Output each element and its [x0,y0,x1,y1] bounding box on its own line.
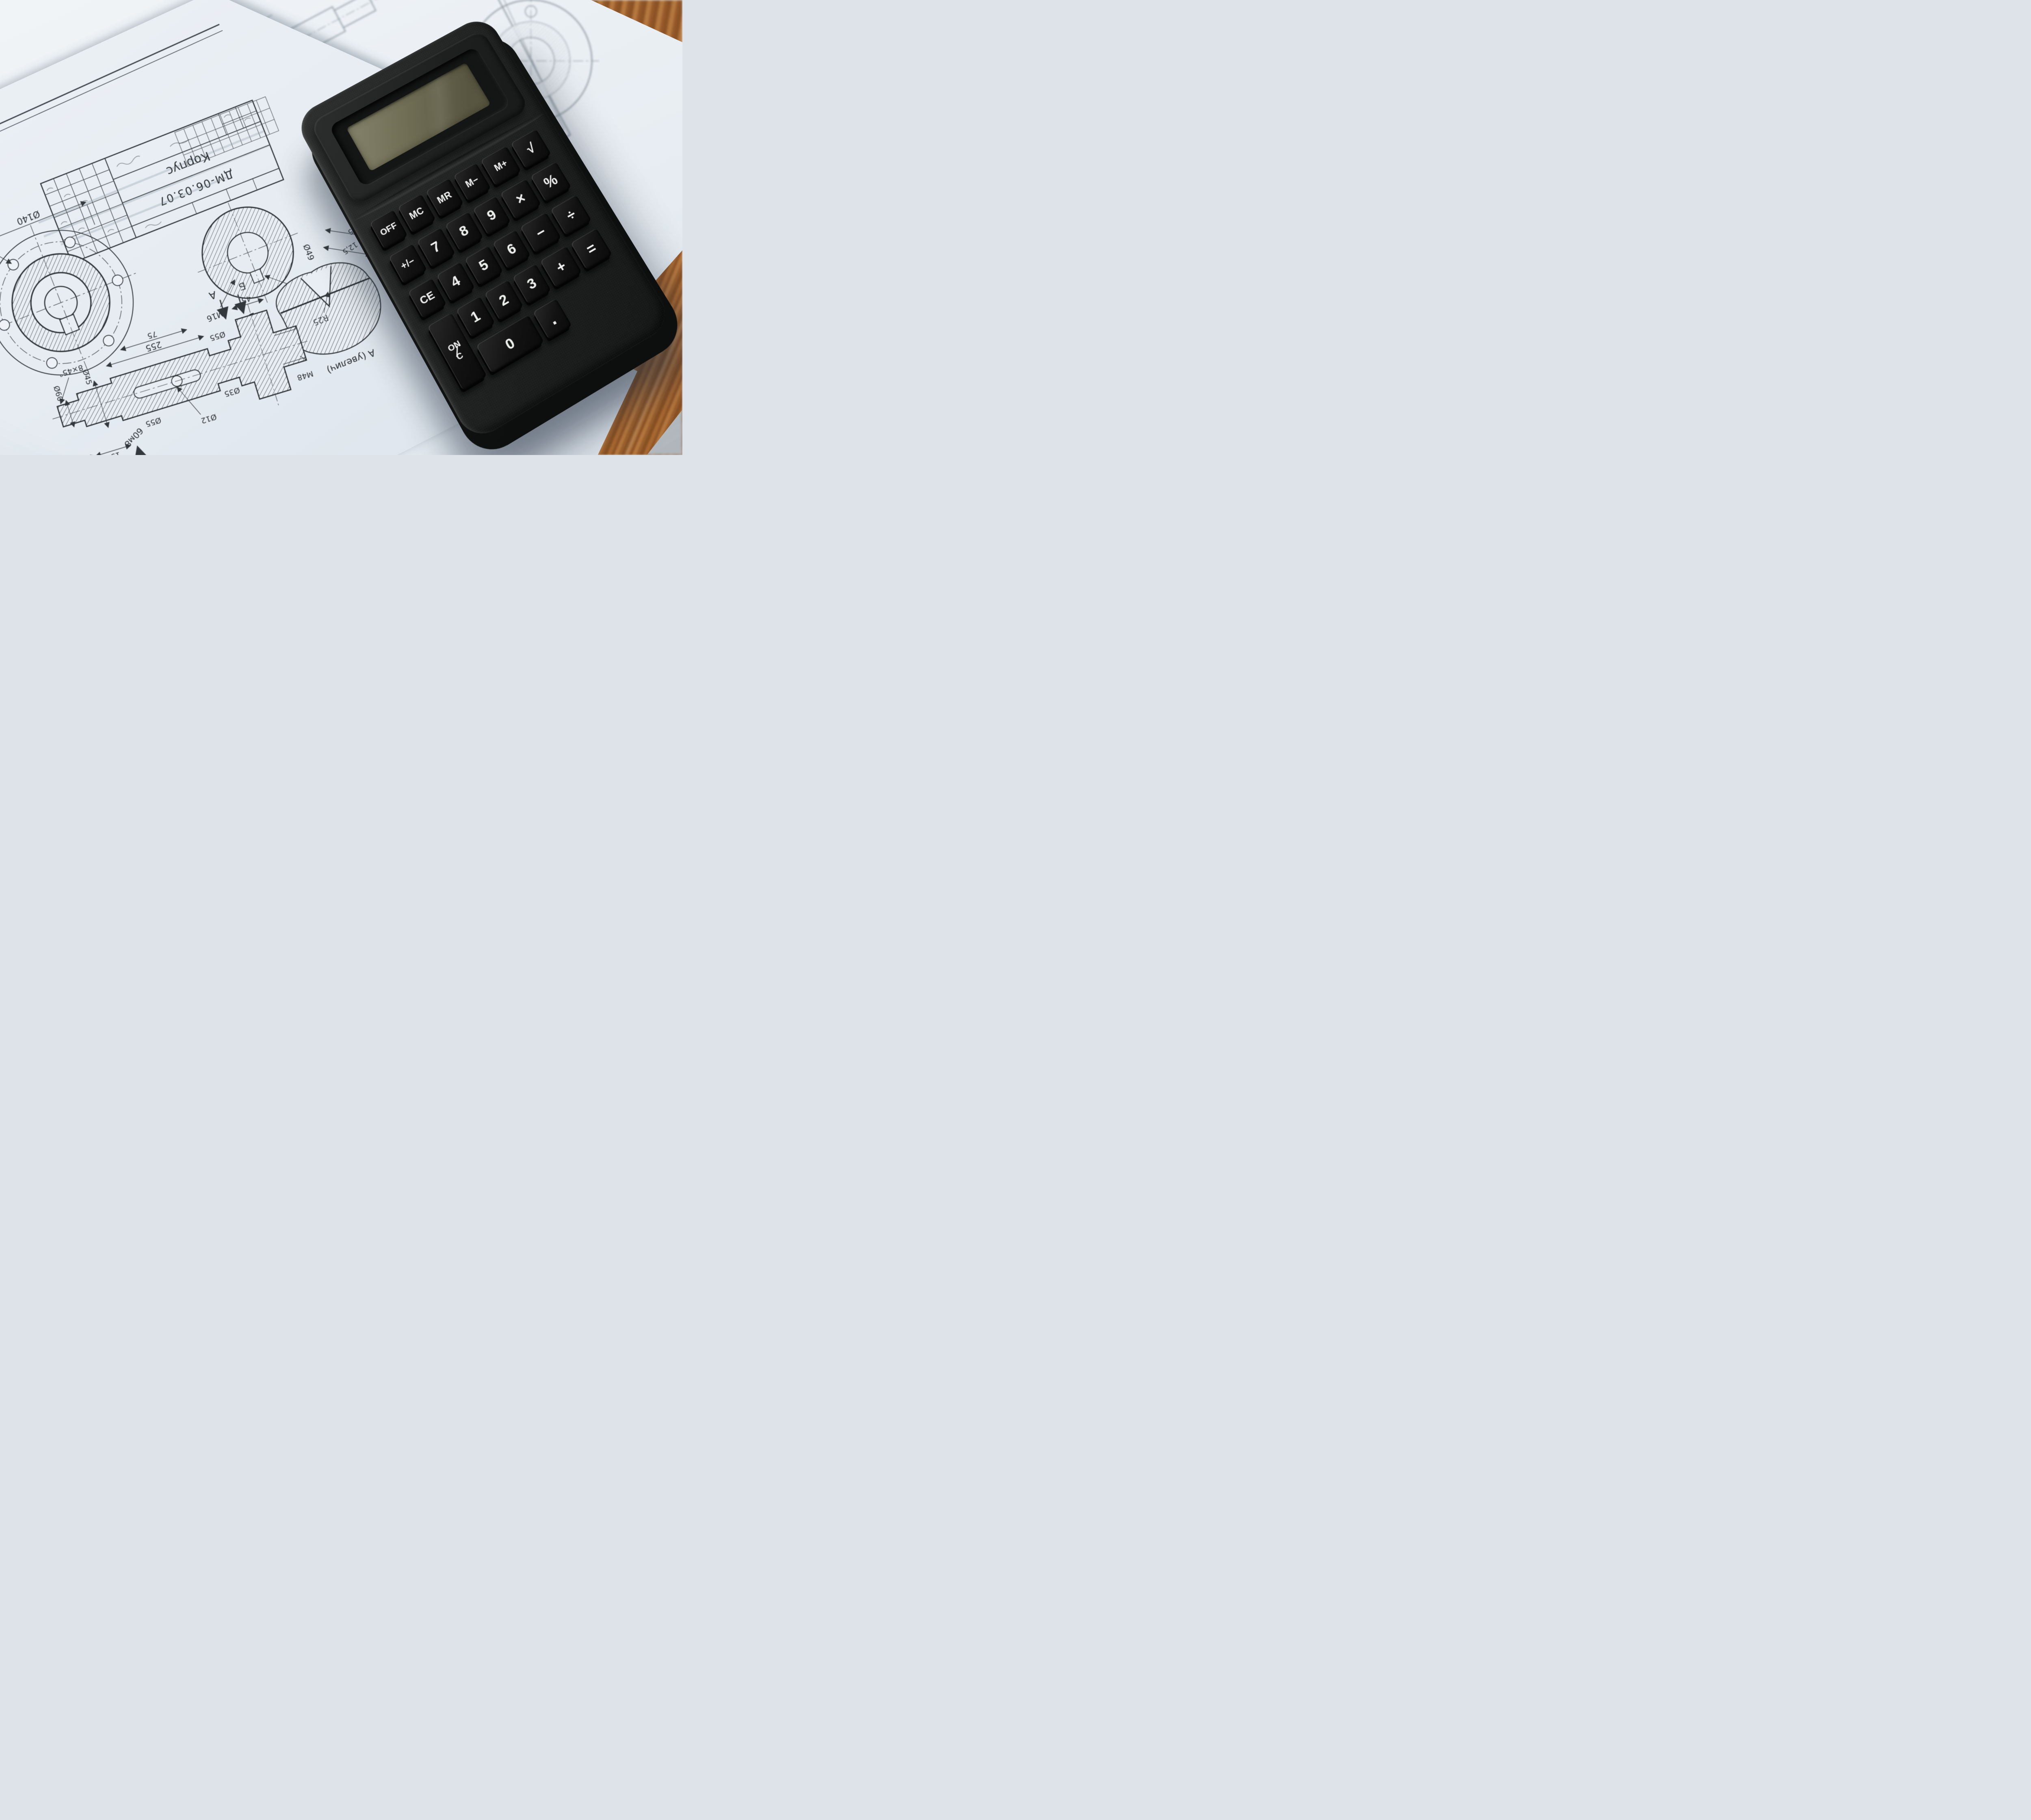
key-equals[interactable]: = [571,228,613,270]
key-off[interactable]: OFF [370,210,408,249]
key-divide[interactable]: ÷ [550,195,592,236]
key-percent[interactable]: % [530,162,572,202]
key-mc[interactable]: MC [398,194,436,233]
key-multiply[interactable]: × [500,179,541,219]
key-sqrt[interactable]: √ [511,129,551,168]
photo-scene: Корпус ДМ-06.03.07 [0,0,682,455]
key-plus-minus[interactable]: +/− [389,243,427,284]
key-m-plus[interactable]: M+ [481,146,521,186]
